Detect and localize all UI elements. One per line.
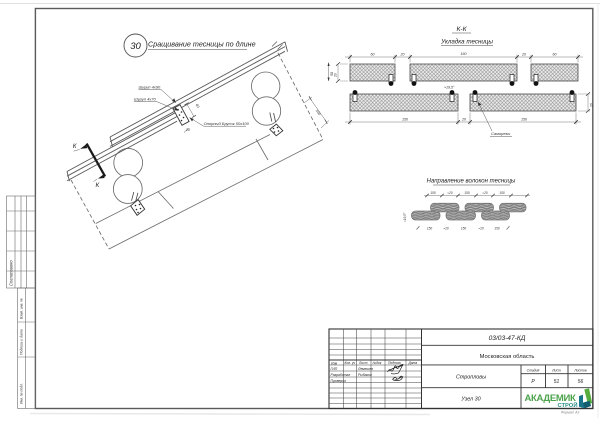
svg-text:СТРОЙ: СТРОЙ [557, 401, 577, 409]
svg-text:160: 160 [461, 52, 467, 56]
svg-text:51: 51 [554, 379, 560, 385]
svg-text:≈20: ≈20 [447, 191, 453, 195]
svg-text:60: 60 [553, 53, 557, 57]
svg-text:Согласовано: Согласовано [8, 260, 13, 286]
svg-text:≈20: ≈20 [443, 227, 449, 231]
svg-text:Опорный Брусок 50х100: Опорный Брусок 50х100 [204, 121, 250, 126]
svg-text:К: К [73, 143, 77, 150]
svg-text:Лист: Лист [551, 369, 561, 373]
svg-text:150: 150 [499, 191, 505, 195]
svg-text:№док: №док [373, 361, 382, 365]
svg-text:Лемешев: Лемешев [357, 367, 373, 371]
svg-text:Саморезы: Саморезы [491, 131, 510, 136]
svg-text:≈19,5°: ≈19,5° [403, 212, 407, 222]
svg-text:К: К [96, 182, 100, 189]
svg-text:Шуруп 4х90: Шуруп 4х90 [139, 84, 162, 89]
svg-text:150: 150 [521, 118, 527, 122]
svg-text:150: 150 [461, 227, 467, 231]
svg-text:Кол. уч: Кол. уч [345, 361, 356, 365]
svg-text:20: 20 [461, 118, 466, 122]
svg-text:20: 20 [521, 53, 526, 57]
svg-text:ГИП: ГИП [331, 367, 338, 371]
svg-text:Проверил: Проверил [331, 379, 347, 383]
svg-text:Изм: Изм [331, 361, 338, 365]
svg-text:20: 20 [400, 53, 405, 57]
svg-text:Сращивание тесницы по длине: Сращивание тесницы по длине [148, 40, 256, 49]
svg-text:Подпись и дата: Подпись и дата [19, 329, 23, 355]
svg-text:150: 150 [402, 118, 408, 122]
svg-text:150: 150 [430, 191, 436, 195]
svg-text:Стропловы: Стропловы [456, 375, 486, 381]
svg-text:Дата: Дата [408, 361, 418, 365]
svg-text:К-К: К-К [457, 26, 468, 33]
svg-text:03/03-47-КД: 03/03-47-КД [489, 335, 526, 342]
svg-text:Взам. инв. №: Взам. инв. № [19, 298, 23, 319]
svg-text:Инв. № подл.: Инв. № подл. [19, 383, 23, 404]
svg-text:150: 150 [427, 227, 433, 231]
svg-text:150: 150 [464, 191, 470, 195]
svg-text:30: 30 [130, 41, 141, 52]
svg-text:20: 20 [185, 128, 190, 132]
svg-text:≈19,5°: ≈19,5° [444, 86, 455, 90]
svg-text:60: 60 [371, 53, 375, 57]
svg-text:≈20: ≈20 [482, 191, 488, 195]
svg-text:Узел 30: Узел 30 [460, 397, 480, 403]
svg-text:Рыбаков: Рыбаков [358, 373, 372, 377]
svg-text:56: 56 [578, 379, 584, 385]
svg-text:Листов: Листов [573, 369, 587, 373]
svg-text:Лист: Лист [358, 361, 368, 365]
svg-text:Шуруп 4х70: Шуруп 4х70 [134, 96, 157, 101]
svg-text:Стадия: Стадия [527, 369, 540, 373]
svg-text:Укладка тесницы: Укладка тесницы [440, 39, 493, 46]
svg-text:Московская область: Московская область [480, 354, 535, 360]
svg-text:Разработал: Разработал [331, 373, 351, 377]
svg-text:20: 20 [590, 103, 594, 108]
svg-text:Формат А3: Формат А3 [561, 411, 580, 415]
svg-text:≈20: ≈20 [478, 227, 484, 231]
svg-text:Подпись: Подпись [388, 361, 401, 365]
svg-text:20: 20 [334, 73, 338, 78]
svg-text:150: 150 [494, 227, 500, 231]
svg-text:Направление волокон тесницы: Направление волокон тесницы [427, 179, 516, 185]
